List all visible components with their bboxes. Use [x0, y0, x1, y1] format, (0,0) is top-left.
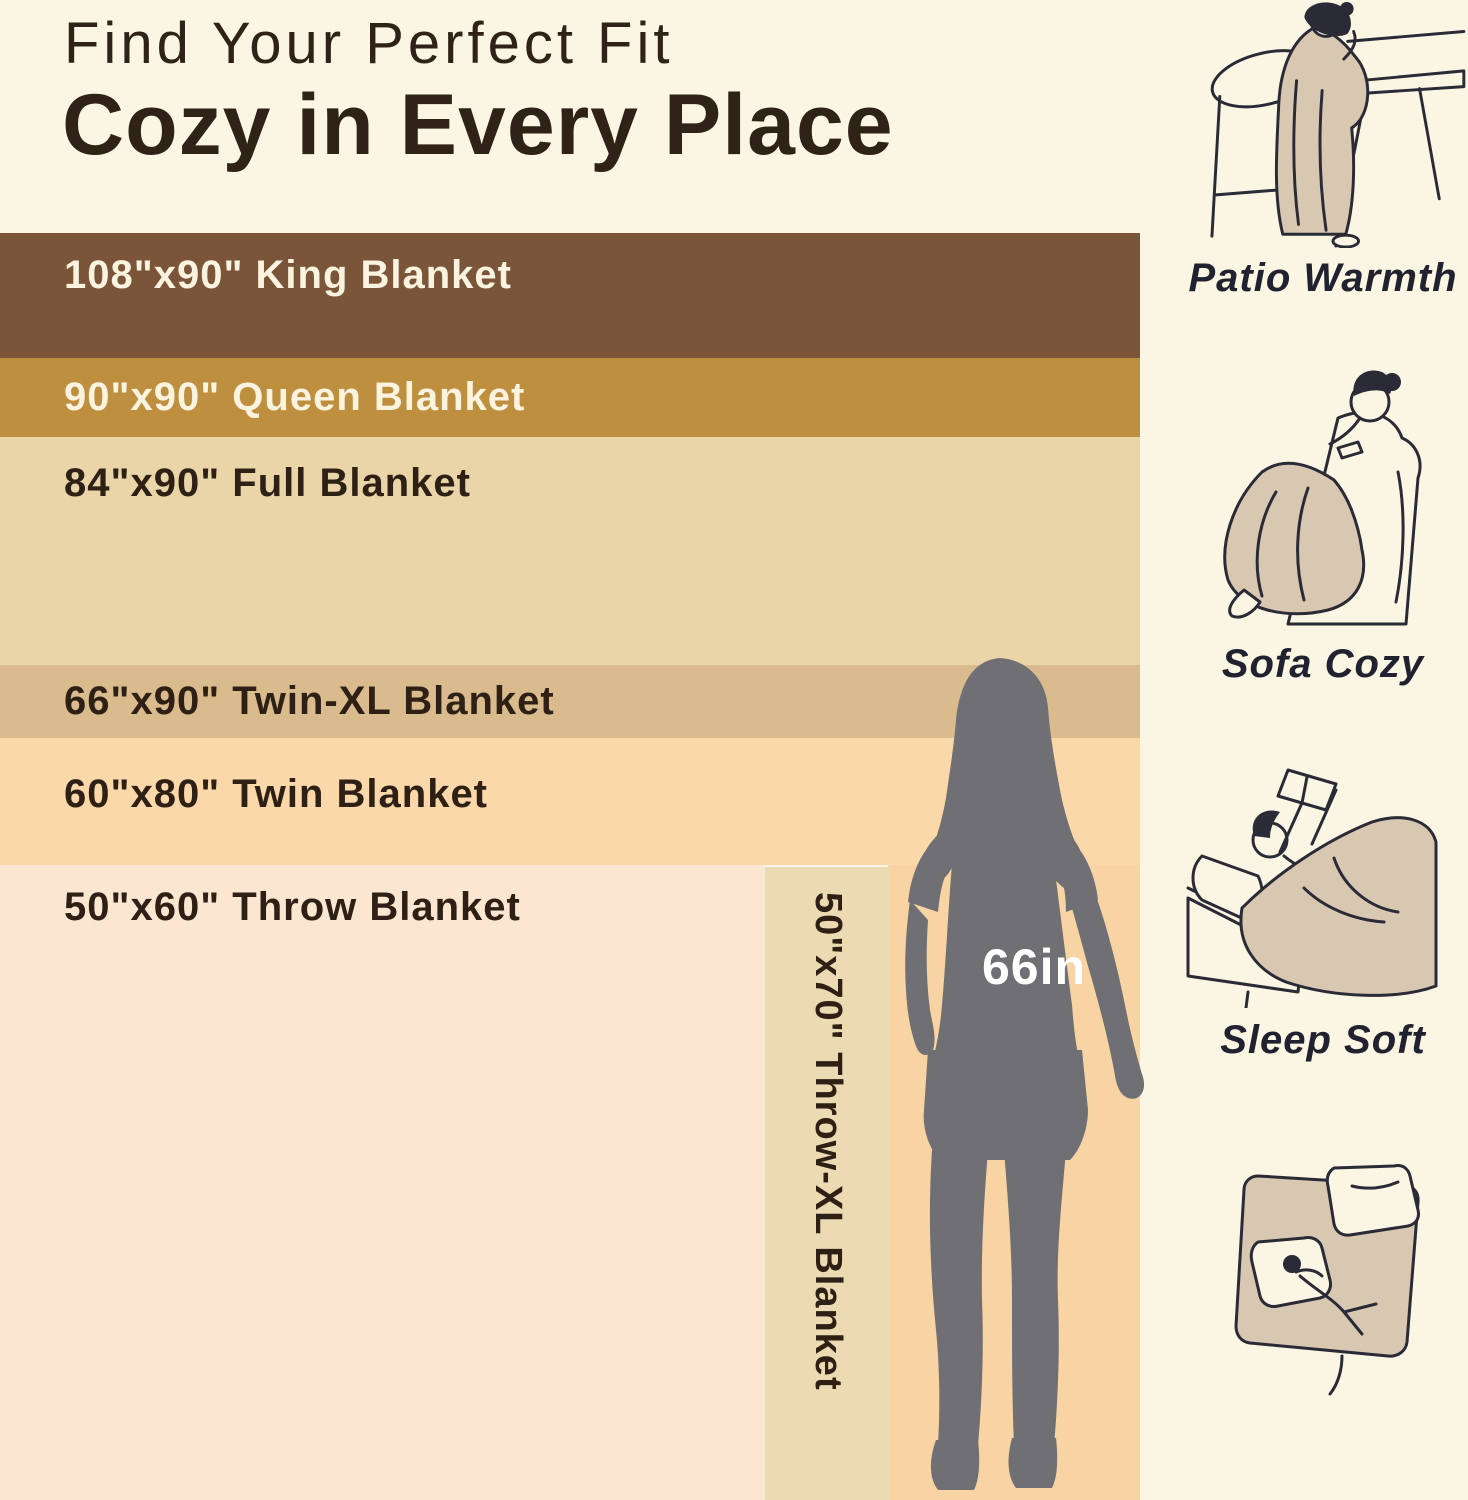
- band-king: 108"x90" King Blanket: [0, 233, 1140, 358]
- band-king-label: 108"x90" King Blanket: [64, 253, 512, 297]
- band-throw-xl-label: 50"x70" Throw-XL Blanket: [806, 892, 849, 1492]
- sleep-soft-illustration: [1184, 748, 1462, 1008]
- band-full-label: 84"x90" Full Blanket: [64, 461, 471, 505]
- scene-caption-sleep: Sleep Soft: [1178, 1018, 1468, 1063]
- title-line1: Find Your Perfect Fit: [64, 10, 673, 77]
- title-line2: Cozy in Every Place: [62, 76, 894, 175]
- band-twin-xl-label: 66"x90" Twin-XL Blanket: [64, 679, 555, 723]
- figure-height-label: 66in: [982, 938, 1086, 996]
- band-full: 84"x90" Full Blanket: [0, 437, 1140, 665]
- patio-warmth-illustration: [1196, 2, 1466, 248]
- infographic-canvas: Find Your Perfect Fit Cozy in Every Plac…: [0, 0, 1468, 1500]
- band-twin-label: 60"x80" Twin Blanket: [64, 772, 488, 816]
- scene-caption-patio: Patio Warmth: [1178, 256, 1468, 301]
- band-queen: 90"x90" Queen Blanket: [0, 358, 1140, 437]
- woman-silhouette: [870, 650, 1170, 1495]
- band-queen-label: 90"x90" Queen Blanket: [64, 375, 525, 419]
- band-throw-label: 50"x60" Throw Blanket: [64, 885, 521, 929]
- scene-caption-sofa: Sofa Cozy: [1178, 642, 1468, 687]
- band-throw: 50"x60" Throw Blanket: [0, 865, 763, 1500]
- bed-topview-illustration: [1192, 1146, 1462, 1406]
- sofa-cozy-illustration: [1192, 352, 1462, 632]
